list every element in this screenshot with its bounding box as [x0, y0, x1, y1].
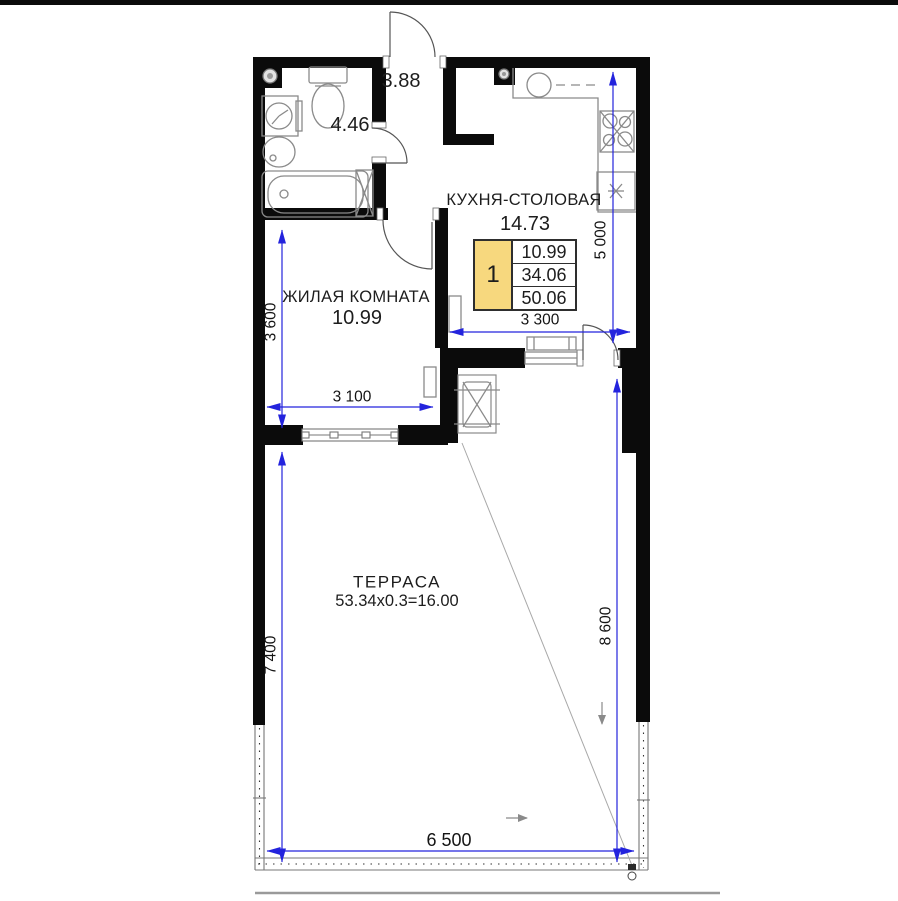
drain-mark-icon [628, 864, 636, 870]
wall-shaft [440, 368, 458, 443]
jamb [383, 56, 389, 68]
elevator-shaft-icon [454, 375, 500, 433]
wall-kitchen-bottom-right [618, 348, 638, 368]
dim-6500-label: 6 500 [426, 831, 471, 849]
wall-living-bottom-left [253, 425, 303, 445]
living-area-label: 10.99 [332, 308, 382, 328]
hall-area-label: 3.88 [382, 71, 421, 91]
jamb [372, 157, 386, 163]
radiator-icon [449, 296, 461, 332]
apartment-info-table: 1 10.99 34.06 50.06 [473, 239, 577, 311]
living-room-door [383, 220, 432, 269]
stove-icon [600, 111, 634, 152]
sink-icon [263, 137, 295, 167]
walls [0, 0, 898, 725]
wall-left [253, 57, 265, 725]
kitchen-sink-icon [527, 73, 598, 97]
terrace-name-label: ТЕРРАСА [353, 574, 441, 591]
wall-hall-stub [450, 134, 494, 145]
vent-box-icon [258, 64, 282, 88]
jamb [433, 208, 439, 220]
wall-top-right [441, 57, 650, 68]
top-band [0, 0, 898, 5]
jamb [372, 122, 386, 128]
jamb [377, 208, 383, 220]
bathroom-area-label: 4.46 [331, 115, 370, 135]
floor-plan-drawing [0, 0, 898, 901]
total-area-cell: 50.06 [513, 287, 575, 309]
kitchen-window [525, 352, 577, 364]
dim-5000-label: 5 000 [593, 221, 609, 260]
wall-kitchen-bottom-left [440, 348, 525, 368]
wall-hall-kitchen [443, 57, 456, 145]
slope-diagonal [462, 443, 633, 868]
kitchen-name-label: КУХНЯ-СТОЛОВАЯ [446, 192, 601, 209]
dim-8600-label: 8 600 [598, 607, 614, 646]
fridge-icon [597, 172, 635, 210]
rooms-count-cell: 1 [475, 241, 513, 309]
radiator-icon [424, 367, 436, 397]
terrace-marks [255, 443, 720, 893]
living-name-label: ЖИЛАЯ КОМНАТА [282, 289, 430, 306]
jamb [440, 56, 446, 68]
kitchen-radiator-icon [527, 337, 576, 350]
floor-plan: 3.88 4.46 КУХНЯ-СТОЛОВАЯ 14.73 ЖИЛАЯ КОМ… [0, 0, 898, 901]
wall-living-kitchen [435, 208, 448, 348]
living-window [302, 429, 398, 441]
area-cell: 34.06 [513, 264, 575, 287]
dim-3100-label: 3 100 [333, 389, 372, 405]
bathroom-fixtures [258, 64, 373, 217]
door-jambs [372, 56, 620, 366]
washing-machine-icon [262, 96, 302, 136]
wall-right [636, 57, 650, 722]
kitchen-area-label: 14.73 [500, 214, 550, 234]
jamb [577, 350, 583, 366]
terrace-calc-label: 53.34x0.3=16.00 [335, 593, 458, 610]
drain-mark-icon [628, 872, 636, 880]
kitchen-vent-icon [494, 64, 515, 85]
dim-3600-label: 3 600 [263, 303, 279, 342]
wall-step-column [622, 368, 638, 453]
dim-7400-label: 7 400 [263, 636, 279, 675]
dim-3300-label: 3 300 [521, 312, 560, 328]
living-area-cell: 10.99 [513, 241, 575, 264]
entrance-door [390, 12, 435, 57]
